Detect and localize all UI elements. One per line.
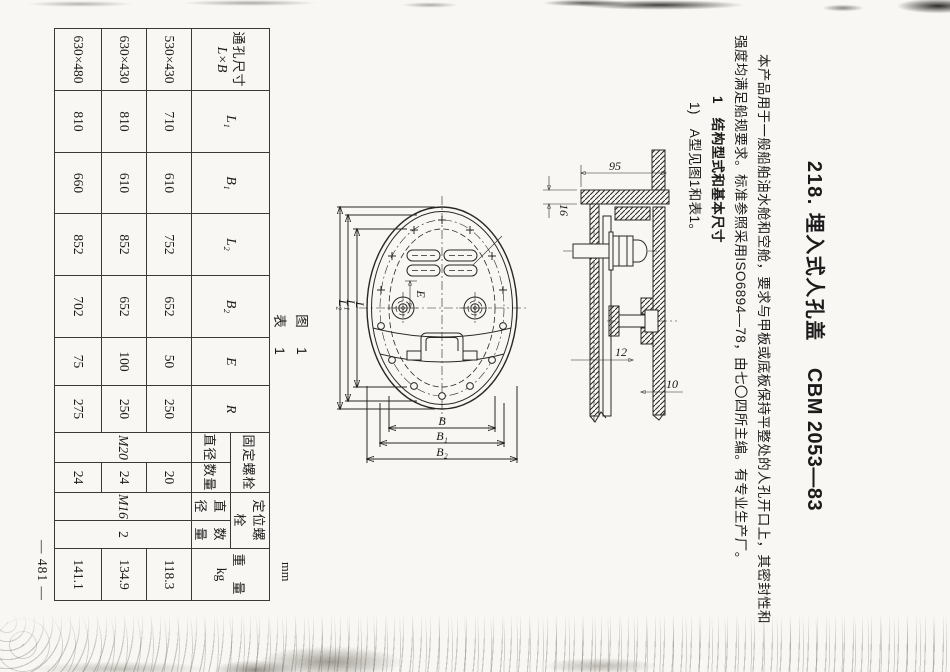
cell-fix-quantity: 24 (55, 463, 102, 493)
cell-size: 630×430 (102, 29, 147, 91)
cell-B2: 702 (55, 276, 102, 338)
cell-L1: 810 (55, 91, 102, 153)
col-header-positioning-bolt: 定位螺栓 (231, 493, 270, 549)
dim-16-label: 16 (557, 204, 571, 216)
cell-B1: 610 (102, 153, 147, 214)
cell-R: 250 (147, 386, 192, 433)
cell-B2: 652 (147, 276, 192, 338)
dim-B-label: B (438, 414, 446, 428)
col-header-E: E (192, 338, 270, 386)
cell-E: 100 (102, 338, 147, 386)
cell-E: 50 (147, 338, 192, 386)
cell-B1: 610 (147, 153, 192, 214)
cell-L2: 752 (147, 214, 192, 276)
col-header-weight: 重 量 kg (192, 549, 270, 601)
table-header-row-1: 通孔尺寸 L×B L₁ B₁ L₂ B₂ E R 固定螺栓 定位螺栓 重 量 k… (231, 29, 270, 601)
dim-12-label: 12 (615, 345, 627, 359)
col-header-L2: L₂ (192, 214, 270, 276)
col-header-B2: B₂ (192, 276, 270, 338)
cell-L1: 810 (102, 91, 147, 153)
subheader-fix-quantity: 数量 (192, 463, 231, 493)
scanned-standard-page: 218. 埋入式人孔盖CBM 2053—83 本产品用于一般船舶油水舱和空舱，要… (0, 0, 950, 672)
subheader-pos-quantity: 数量 (192, 521, 231, 549)
unit-label: mm (278, 562, 293, 581)
intro-line-2: 强度均满足船规要求。标准参照采用ISO6894—78，由七〇四所主编。有专业生产… (732, 35, 752, 566)
vent-slots (407, 236, 502, 276)
col-header-L1: L₁ (192, 91, 270, 153)
standard-code: CBM 2053—83 (803, 368, 825, 511)
cell-weight: 141.1 (55, 549, 102, 601)
subheader-fix-diameter: 直径 (192, 433, 231, 463)
col-header-size: 通孔尺寸 L×B (192, 29, 270, 91)
cell-weight: 134.9 (102, 549, 147, 601)
dim-95-label: 95 (609, 159, 621, 173)
cell-pos-quantity: 2 (55, 521, 192, 549)
plan-view-figure: E L₂ L₁ L B (295, 148, 545, 483)
cell-E: 75 (55, 338, 102, 386)
section-view-figure: 95 16 12 10 (535, 130, 715, 475)
cell-B1: 660 (55, 153, 102, 214)
dim-L-label: L (353, 301, 367, 309)
dimension-table: 通孔尺寸 L×B L₁ B₁ L₂ B₂ E R 固定螺栓 定位螺栓 重 量 k… (54, 28, 270, 601)
cell-R: 275 (55, 386, 102, 433)
cell-size: 530×430 (147, 29, 192, 91)
cell-fix-quantity: 20 (147, 463, 192, 493)
subheader-pos-diameter: 直径 (192, 493, 231, 521)
col-header-B1: B₁ (192, 153, 270, 214)
dim-B1-label: B₁ (436, 429, 448, 443)
cell-L1: 710 (147, 91, 192, 153)
cell-L2: 852 (55, 214, 102, 276)
dim-B2-label: B₂ (436, 445, 448, 459)
cell-fix-diameter: M20 (55, 433, 192, 463)
cell-fix-quantity: 24 (102, 463, 147, 493)
col-header-fixing-bolt: 固定螺栓 (231, 433, 270, 493)
dim-E-label: E (414, 289, 428, 298)
col-header-R: R (192, 386, 270, 433)
cell-L2: 852 (102, 214, 147, 276)
cell-size: 630×480 (55, 29, 102, 91)
cell-pos-diameter: M16 (55, 493, 192, 521)
table-row: 530×430 710 610 752 652 50 250 M20 20 M1… (147, 29, 192, 601)
intro-line-1: 本产品用于一般船舶油水舱和空舱，要求与甲板或底板保持平整处的人孔开口上，其密封性… (755, 54, 775, 624)
page-title: 218. 埋入式人孔盖CBM 2053—83 (802, 0, 831, 672)
dim-10-label: 10 (666, 377, 678, 391)
cell-B2: 652 (102, 276, 147, 338)
page-number: — 481 — (34, 540, 50, 601)
cell-R: 250 (102, 386, 147, 433)
cell-weight: 118.3 (147, 549, 192, 601)
standard-number-and-name: 218. 埋入式人孔盖 (803, 161, 825, 342)
